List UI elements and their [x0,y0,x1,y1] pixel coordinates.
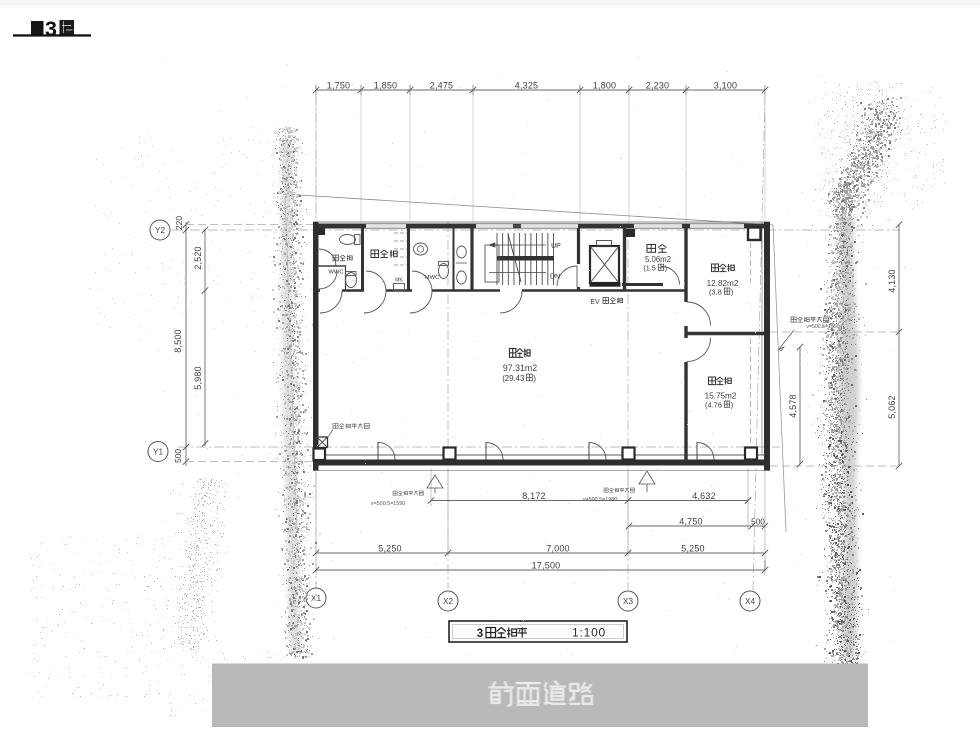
svg-text:4,325: 4,325 [515,80,539,90]
svg-text:X2: X2 [443,597,453,606]
svg-text:7,000: 7,000 [546,543,570,553]
svg-text:): ) [533,374,536,383]
svg-text:3: 3 [45,17,57,41]
svg-text:8,500: 8,500 [173,329,183,353]
svg-text:(3.8: (3.8 [709,288,722,297]
svg-text:2,520: 2,520 [193,246,203,270]
svg-text:WWC: WWC [328,270,343,276]
svg-text:1,800: 1,800 [593,80,617,90]
svg-text:): ) [731,401,733,410]
svg-text:): ) [665,264,667,273]
svg-text:1,750: 1,750 [327,80,351,90]
svg-text:500: 500 [173,449,183,463]
svg-text:EV: EV [590,299,600,306]
svg-text:v=500.5=1590: v=500.5=1590 [371,501,405,507]
svg-text:MK: MK [395,278,403,284]
svg-text:2,230: 2,230 [646,80,670,90]
svg-text:DN: DN [550,274,560,281]
svg-text:5,062: 5,062 [887,395,897,419]
svg-text:3: 3 [477,628,483,640]
svg-text:97.31m2: 97.31m2 [503,363,537,373]
svg-text:Y1: Y1 [153,448,163,457]
svg-text:5,980: 5,980 [193,366,203,390]
svg-text:UP: UP [551,243,561,250]
svg-text:5,250: 5,250 [681,543,705,553]
svg-text:4,632: 4,632 [692,491,716,501]
svg-text:8,172: 8,172 [522,491,546,501]
svg-text:2,475: 2,475 [430,80,454,90]
svg-text:3,100: 3,100 [714,80,738,90]
svg-text:4,578: 4,578 [788,394,798,418]
svg-text:4,130: 4,130 [887,269,897,293]
svg-text:(1.5: (1.5 [643,264,655,273]
svg-text:1:100: 1:100 [572,626,606,640]
svg-text:1,850: 1,850 [374,80,398,90]
svg-text:5,250: 5,250 [378,543,402,553]
svg-text:(4.76: (4.76 [705,401,722,410]
svg-text:X4: X4 [745,597,755,606]
svg-text:X3: X3 [623,597,633,606]
svg-text:15.75m2: 15.75m2 [705,392,737,401]
svg-text:(29.43: (29.43 [502,374,524,383]
svg-text:4,750: 4,750 [679,516,703,526]
svg-text:): ) [731,288,733,297]
svg-text:17,500: 17,500 [532,561,561,571]
